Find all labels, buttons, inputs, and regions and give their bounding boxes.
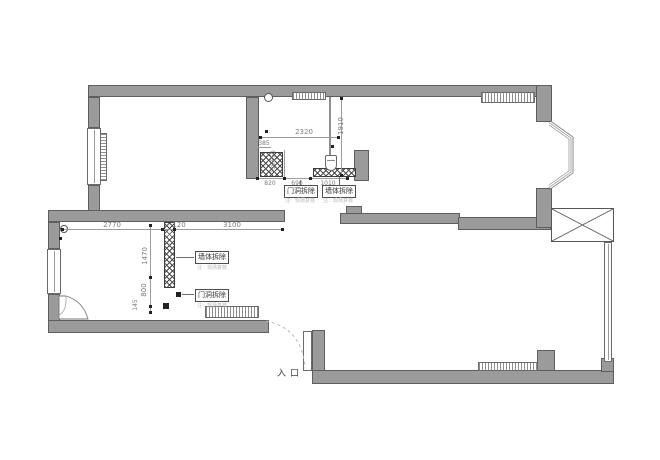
window-living-right (604, 242, 612, 362)
dim-tick (61, 228, 64, 231)
floor-plan: 入口 2320 1910 385 550 130 820 690 1010 27… (0, 0, 660, 460)
leader-dot (163, 303, 169, 309)
dim-tick (149, 276, 152, 279)
toilet-icon (325, 155, 337, 171)
dim-tick (149, 311, 152, 314)
dim-tick (340, 174, 343, 177)
dim-tick (161, 228, 164, 231)
shaft-box (551, 208, 614, 242)
dim-line-bath-bottom (257, 178, 349, 179)
window-bedroom1-left (87, 128, 101, 185)
wall-left-upper-a (88, 97, 100, 128)
dim-145: 145 (132, 295, 140, 315)
window-room-left (47, 249, 61, 294)
wall-living-bottom (312, 370, 614, 384)
radiator-bedroom1 (100, 133, 107, 181)
dim-120: 120 (166, 221, 192, 229)
toilet-tank (327, 157, 335, 161)
entrance-label: 入口 (277, 366, 303, 379)
label-wall-demolish-top: 墙体拆除 (322, 185, 356, 198)
dim-130: 130 (270, 160, 278, 176)
wall-left-upper-b (88, 185, 100, 211)
dim-tick (259, 136, 262, 139)
wall-bottom-left (48, 320, 269, 333)
dim-tick (149, 224, 152, 227)
dim-line-bath-v (284, 150, 285, 178)
dim-tick (59, 237, 62, 240)
entrance-door-swing (258, 318, 310, 370)
dim-tick (281, 228, 284, 231)
label-door-demolish-left: 门洞拆除 (195, 289, 229, 302)
dim-tick (346, 177, 349, 180)
corner-unit (57, 293, 90, 321)
wall-corridor-right-a (340, 213, 460, 224)
dim-tick (331, 145, 334, 148)
dim-3100: 3100 (208, 221, 256, 229)
label-door-demolish-top: 门洞拆除 (284, 185, 318, 198)
dim-line-left-v (150, 225, 151, 313)
label-wall-demolish-left: 墙体拆除 (195, 251, 229, 264)
dim-820: 820 (257, 180, 283, 188)
dim-385: 385 (254, 140, 274, 148)
dim-tick (149, 305, 152, 308)
dim-1470: 1470 (141, 242, 149, 270)
fixture-circle-bath (264, 93, 273, 102)
radiator-living (478, 362, 538, 371)
dim-tick (340, 97, 343, 100)
wall-living-left (312, 330, 325, 372)
leader-line (176, 257, 194, 258)
wall-living-pillar (537, 350, 555, 371)
label-note: 注：现场复核 (197, 303, 227, 309)
bay-window (548, 117, 578, 193)
dim-2770: 2770 (92, 221, 132, 229)
demolish-wall-hatch-left (164, 222, 175, 288)
radiator-bedroom2 (481, 92, 535, 103)
shaft-x-icon (552, 209, 613, 241)
dim-1910: 1910 (337, 112, 345, 140)
wall-bay-bottom (536, 188, 552, 228)
dim-line-2320 (260, 137, 340, 138)
label-note: 注：现场复核 (285, 198, 315, 204)
wall-bedroom2-stub (354, 150, 369, 181)
label-note: 注：现场复核 (197, 265, 227, 271)
dim-2320: 2320 (282, 128, 326, 136)
wall-bedroom1-right (246, 97, 259, 179)
dim-800: 800 (140, 278, 148, 302)
wall-notch (346, 206, 362, 214)
radiator-bath (292, 92, 326, 100)
leader-line (182, 294, 194, 295)
dim-tick (265, 130, 268, 133)
wall-left-lower-a (48, 222, 60, 249)
leader-dot (176, 292, 181, 297)
label-note: 注：现场复核 (323, 198, 353, 204)
leader-line (339, 177, 340, 185)
